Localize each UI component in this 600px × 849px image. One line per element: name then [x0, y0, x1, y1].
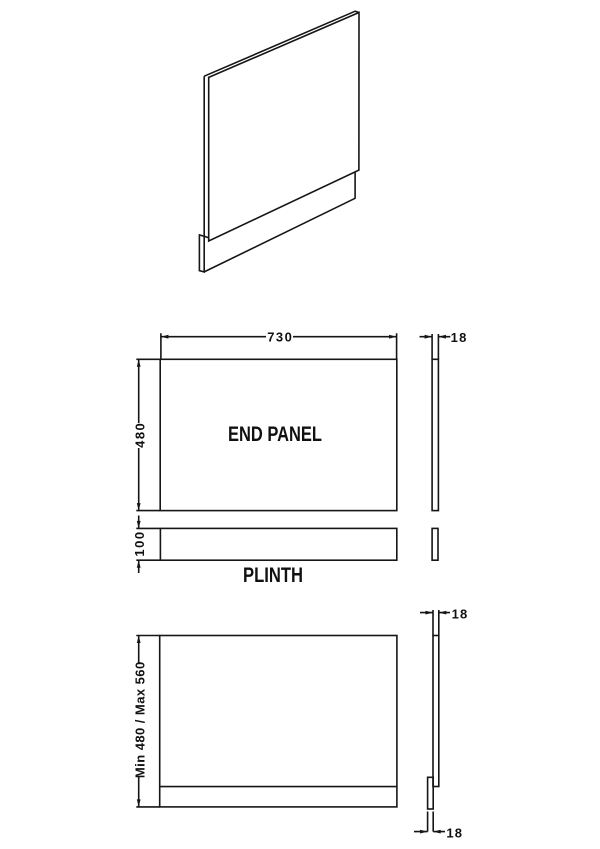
svg-text:Min 480 / Max 560: Min 480 / Max 560: [132, 661, 147, 778]
svg-text:100: 100: [132, 530, 147, 556]
svg-text:18: 18: [446, 825, 463, 840]
svg-text:PLINTH: PLINTH: [243, 564, 303, 587]
svg-text:480: 480: [132, 422, 147, 448]
svg-text:18: 18: [452, 606, 469, 621]
svg-text:730: 730: [267, 330, 293, 345]
svg-text:END PANEL: END PANEL: [228, 423, 322, 446]
svg-text:18: 18: [451, 330, 468, 345]
